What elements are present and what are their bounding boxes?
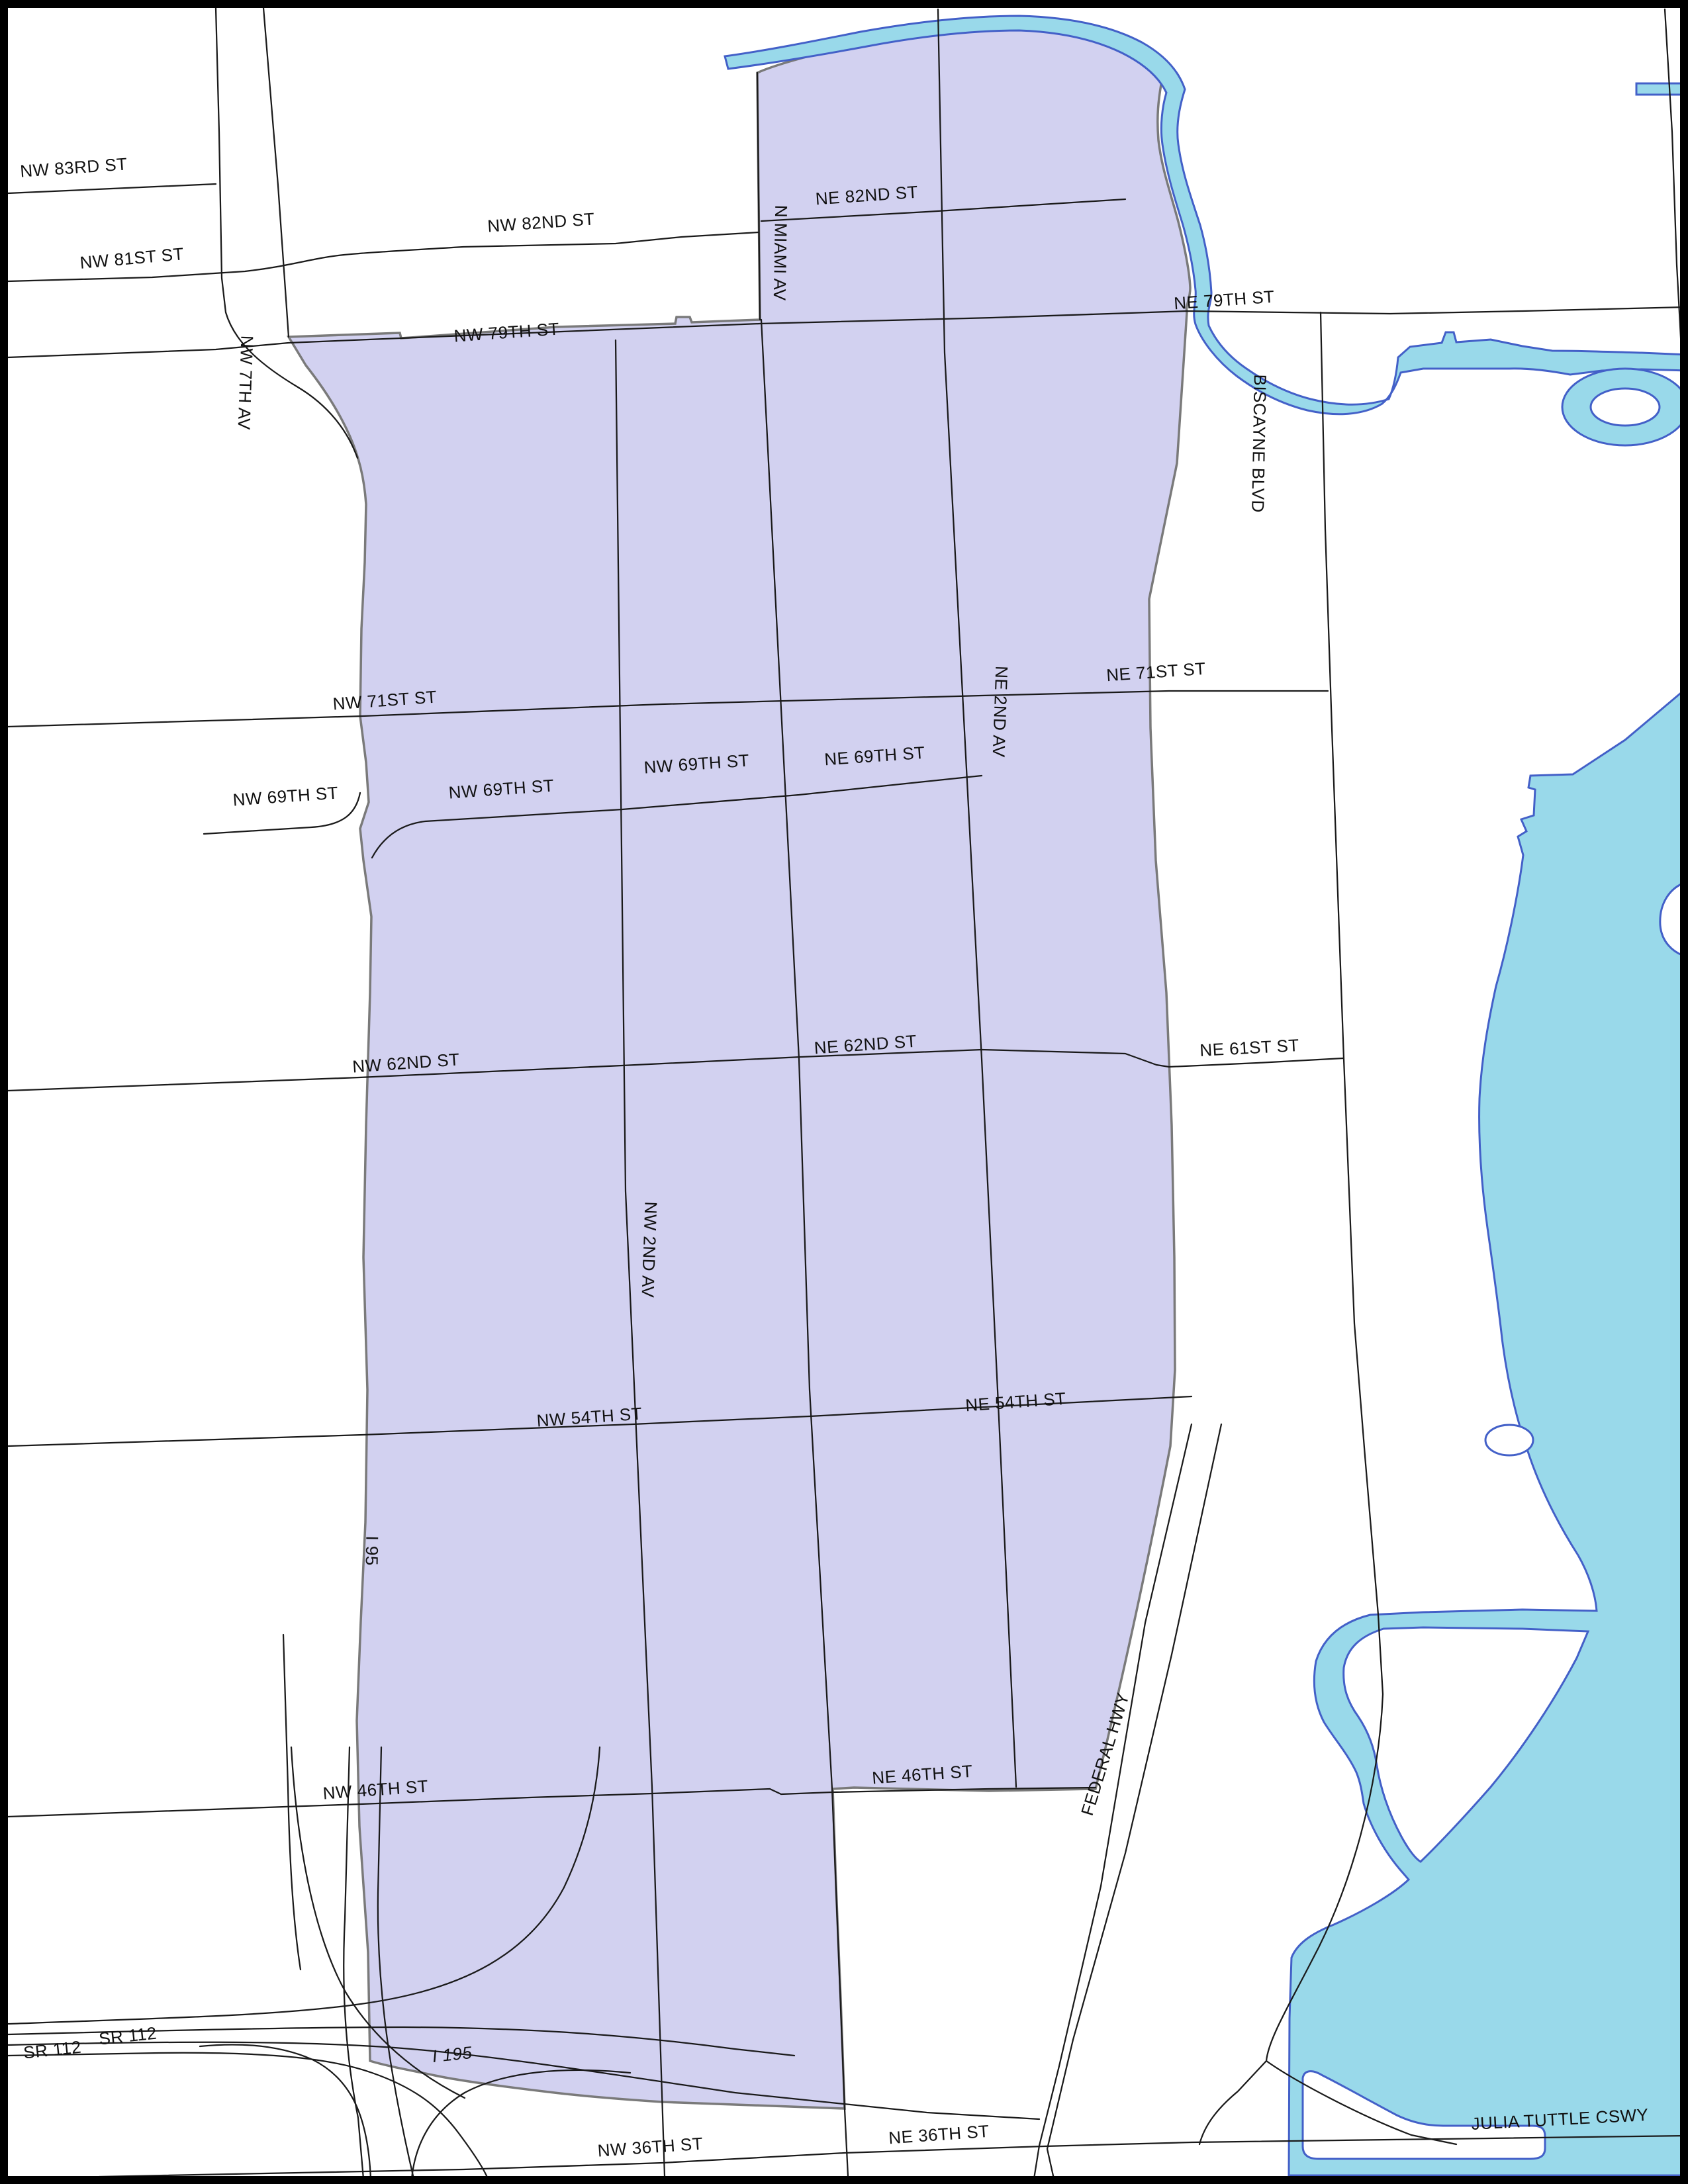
street-label: NW 2ND AV — [637, 1201, 661, 1298]
street-label: I 95 — [362, 1535, 383, 1566]
small-bay-island — [1485, 1425, 1533, 1455]
street-label: NE 61ST ST — [1199, 1035, 1300, 1060]
street-label: NW 7TH AV — [234, 335, 258, 430]
corner-canal — [1636, 83, 1685, 95]
biscayne-bay — [1289, 687, 1688, 2175]
street-label: SR 112 — [98, 2023, 158, 2049]
street-label: BISCAYNE BLVD — [1248, 374, 1270, 513]
street-label: N MIAMI AV — [770, 205, 792, 301]
street-label: I 195 — [431, 2042, 473, 2066]
causeway-ramp — [1199, 2061, 1266, 2144]
ramp-west-feeder — [283, 1635, 301, 1970]
map-canvas: NW 83RD STNW 81ST STNW 82ND STNE 82ND ST… — [0, 0, 1688, 2184]
street-label: NW 83RD ST — [19, 154, 128, 181]
road-nw-83rd-st — [8, 184, 216, 193]
street-label: NW 81ST ST — [79, 244, 185, 273]
street-label: NW 82ND ST — [487, 208, 595, 236]
road-ne-10th-av — [1665, 9, 1681, 349]
street-label: NW 36TH ST — [597, 2133, 704, 2160]
road-rail-diagonal — [263, 8, 289, 337]
river-loop-island — [1591, 388, 1660, 426]
street-label: NE 2ND AV — [989, 666, 1012, 758]
street-label: NE 36TH ST — [888, 2121, 990, 2148]
street-label: SR 112 — [23, 2037, 82, 2063]
street-label: NW 69TH ST — [232, 782, 339, 809]
